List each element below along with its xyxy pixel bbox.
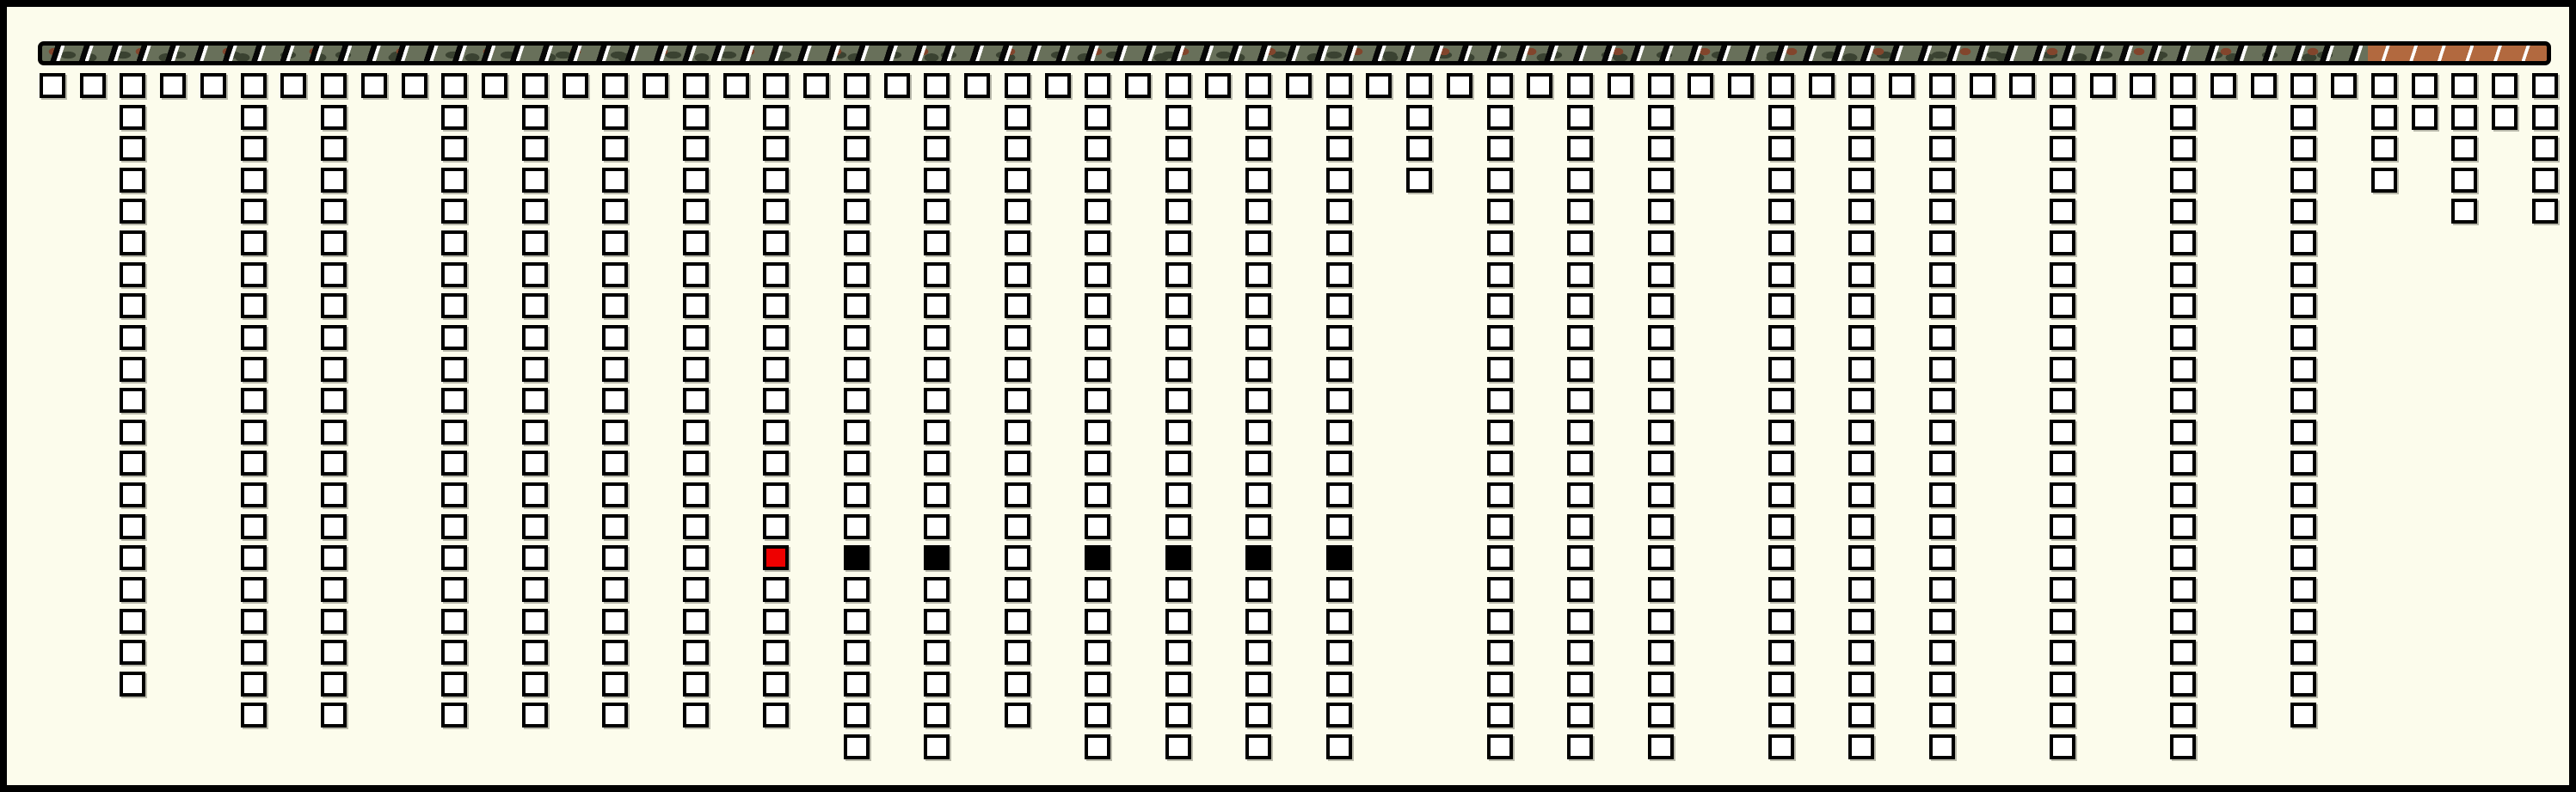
grid-cell[interactable] — [1567, 420, 1593, 445]
grid-cell[interactable] — [1005, 514, 1030, 539]
grid-cell[interactable] — [2050, 105, 2075, 130]
grid-cell[interactable] — [2170, 262, 2196, 287]
grid-cell[interactable] — [1165, 325, 1191, 350]
grid-cell[interactable] — [683, 105, 709, 130]
grid-cell[interactable] — [1768, 105, 1794, 130]
grid-cell[interactable] — [1487, 388, 1513, 413]
header-cell[interactable] — [2170, 73, 2196, 98]
grid-cell[interactable] — [2170, 199, 2196, 224]
grid-cell[interactable] — [241, 168, 267, 193]
grid-cell[interactable] — [763, 357, 789, 382]
grid-cell[interactable] — [1848, 703, 1874, 728]
grid-cell[interactable] — [441, 230, 467, 255]
grid-cell[interactable] — [1085, 609, 1110, 634]
grid-cell[interactable] — [522, 325, 548, 350]
grid-cell[interactable] — [1326, 420, 1352, 445]
grid-cell[interactable] — [241, 105, 267, 130]
grid-cell[interactable] — [1326, 451, 1352, 476]
grid-cell[interactable] — [241, 451, 267, 476]
grid-cell[interactable] — [1487, 545, 1513, 570]
grid-cell[interactable] — [683, 672, 709, 697]
grid-cell[interactable] — [1929, 325, 1955, 350]
grid-cell[interactable] — [763, 451, 789, 476]
grid-cell[interactable] — [1245, 293, 1271, 318]
grid-cell[interactable] — [241, 325, 267, 350]
grid-cell[interactable] — [1487, 230, 1513, 255]
grid-cell[interactable] — [321, 105, 347, 130]
grid-cell[interactable] — [1005, 451, 1030, 476]
header-cell[interactable] — [1608, 73, 1633, 98]
grid-cell[interactable] — [924, 230, 950, 255]
grid-cell[interactable] — [2290, 577, 2316, 602]
grid-cell[interactable] — [441, 136, 467, 161]
grid-cell[interactable] — [1567, 672, 1593, 697]
grid-cell[interactable] — [683, 420, 709, 445]
grid-cell[interactable] — [2290, 168, 2316, 193]
grid-cell[interactable] — [1929, 672, 1955, 697]
grid-cell[interactable] — [2170, 734, 2196, 759]
grid-cell[interactable] — [1245, 577, 1271, 602]
header-cell[interactable] — [2090, 73, 2116, 98]
grid-cell[interactable] — [2170, 703, 2196, 728]
grid-cell[interactable] — [763, 577, 789, 602]
grid-cell[interactable] — [1929, 199, 1955, 224]
grid-cell[interactable] — [522, 482, 548, 507]
grid-cell[interactable] — [2050, 482, 2075, 507]
grid-cell[interactable] — [763, 482, 789, 507]
grid-cell[interactable] — [2290, 262, 2316, 287]
grid-cell[interactable] — [924, 105, 950, 130]
grid-cell[interactable] — [1085, 672, 1110, 697]
grid-cell[interactable] — [1326, 262, 1352, 287]
header-cell[interactable] — [2050, 73, 2075, 98]
header-cell[interactable] — [1889, 73, 1915, 98]
grid-cell[interactable] — [2290, 545, 2316, 570]
grid-cell[interactable] — [120, 357, 145, 382]
grid-cell[interactable] — [844, 703, 870, 728]
grid-cell[interactable] — [1005, 357, 1030, 382]
grid-cell[interactable] — [2451, 105, 2477, 130]
grid-cell[interactable] — [1326, 230, 1352, 255]
grid-cell[interactable] — [2050, 451, 2075, 476]
grid-cell[interactable] — [1567, 388, 1593, 413]
grid-cell[interactable] — [844, 230, 870, 255]
grid-cell[interactable] — [844, 388, 870, 413]
grid-cell[interactable] — [120, 577, 145, 602]
grid-cell[interactable] — [1648, 420, 1674, 445]
grid-cell[interactable] — [1487, 640, 1513, 665]
header-cell[interactable] — [2412, 73, 2438, 98]
grid-cell[interactable] — [1005, 105, 1030, 130]
header-cell[interactable] — [1728, 73, 1754, 98]
grid-cell[interactable] — [1085, 199, 1110, 224]
grid-cell[interactable] — [120, 451, 145, 476]
grid-cell[interactable] — [2170, 293, 2196, 318]
grid-cell[interactable] — [1768, 325, 1794, 350]
grid-cell[interactable] — [763, 609, 789, 634]
grid-cell[interactable] — [1165, 168, 1191, 193]
header-cell[interactable] — [522, 73, 548, 98]
grid-cell[interactable] — [1768, 545, 1794, 570]
header-cell[interactable] — [1125, 73, 1151, 98]
grid-cell[interactable] — [522, 388, 548, 413]
grid-cell[interactable] — [1085, 640, 1110, 665]
grid-cell[interactable] — [522, 672, 548, 697]
grid-cell[interactable] — [1406, 168, 1432, 193]
grid-cell[interactable] — [2050, 357, 2075, 382]
grid-cell[interactable] — [1326, 357, 1352, 382]
grid-cell[interactable] — [1567, 514, 1593, 539]
header-cell[interactable] — [723, 73, 749, 98]
grid-cell[interactable] — [2371, 105, 2397, 130]
grid-cell[interactable] — [441, 703, 467, 728]
grid-cell[interactable] — [2290, 451, 2316, 476]
grid-cell[interactable] — [522, 136, 548, 161]
grid-cell[interactable] — [1487, 514, 1513, 539]
grid-cell[interactable] — [1648, 514, 1674, 539]
grid-cell[interactable] — [321, 703, 347, 728]
grid-cell[interactable] — [1165, 703, 1191, 728]
grid-cell[interactable] — [1326, 199, 1352, 224]
grid-cell[interactable] — [1326, 672, 1352, 697]
grid-cell[interactable] — [2170, 451, 2196, 476]
grid-cell[interactable] — [1326, 325, 1352, 350]
grid-cell[interactable] — [2050, 168, 2075, 193]
header-cell[interactable] — [2251, 73, 2277, 98]
grid-cell[interactable] — [1848, 168, 1874, 193]
grid-cell[interactable] — [1648, 136, 1674, 161]
grid-cell[interactable] — [1768, 136, 1794, 161]
grid-cell[interactable] — [1085, 703, 1110, 728]
grid-cell[interactable] — [1005, 703, 1030, 728]
grid-cell[interactable] — [1245, 672, 1271, 697]
grid-cell[interactable] — [1567, 199, 1593, 224]
grid-cell[interactable] — [1929, 420, 1955, 445]
grid-cell[interactable] — [2290, 105, 2316, 130]
header-cell[interactable] — [1567, 73, 1593, 98]
grid-cell[interactable] — [1768, 199, 1794, 224]
grid-cell[interactable] — [763, 293, 789, 318]
grid-cell[interactable] — [522, 609, 548, 634]
grid-cell[interactable] — [1326, 734, 1352, 759]
grid-cell[interactable] — [2290, 672, 2316, 697]
grid-cell[interactable] — [120, 262, 145, 287]
grid-cell[interactable] — [441, 672, 467, 697]
grid-cell[interactable] — [120, 420, 145, 445]
grid-cell[interactable] — [683, 199, 709, 224]
grid-cell[interactable] — [602, 357, 628, 382]
grid-cell[interactable] — [120, 514, 145, 539]
grid-cell[interactable] — [1085, 230, 1110, 255]
grid-cell[interactable] — [1648, 168, 1674, 193]
header-cell[interactable] — [1045, 73, 1071, 98]
grid-cell[interactable] — [1768, 451, 1794, 476]
grid-cell[interactable] — [321, 357, 347, 382]
grid-cell[interactable] — [763, 262, 789, 287]
grid-cell[interactable] — [1005, 325, 1030, 350]
header-cell[interactable] — [1406, 73, 1432, 98]
grid-cell[interactable] — [441, 640, 467, 665]
grid-cell[interactable] — [1648, 262, 1674, 287]
grid-cell[interactable] — [241, 703, 267, 728]
grid-cell[interactable] — [602, 262, 628, 287]
grid-cell[interactable] — [1567, 262, 1593, 287]
grid-cell[interactable] — [602, 514, 628, 539]
grid-cell[interactable] — [1648, 388, 1674, 413]
grid-cell[interactable] — [2451, 136, 2477, 161]
grid-cell[interactable] — [1245, 105, 1271, 130]
grid-cell[interactable] — [1648, 325, 1674, 350]
grid-cell[interactable] — [2050, 703, 2075, 728]
filled-cell-black[interactable] — [924, 545, 950, 570]
grid-cell[interactable] — [683, 230, 709, 255]
grid-cell[interactable] — [1648, 199, 1674, 224]
grid-cell[interactable] — [1768, 640, 1794, 665]
grid-cell[interactable] — [602, 577, 628, 602]
grid-cell[interactable] — [2050, 672, 2075, 697]
grid-cell[interactable] — [602, 545, 628, 570]
grid-cell[interactable] — [1567, 734, 1593, 759]
header-cell[interactable] — [2009, 73, 2035, 98]
header-cell[interactable] — [402, 73, 427, 98]
grid-cell[interactable] — [844, 262, 870, 287]
grid-cell[interactable] — [844, 105, 870, 130]
header-cell[interactable] — [321, 73, 347, 98]
grid-cell[interactable] — [2290, 199, 2316, 224]
grid-cell[interactable] — [522, 451, 548, 476]
grid-cell[interactable] — [1326, 514, 1352, 539]
grid-cell[interactable] — [1648, 640, 1674, 665]
grid-cell[interactable] — [1165, 420, 1191, 445]
grid-cell[interactable] — [321, 577, 347, 602]
grid-cell[interactable] — [441, 325, 467, 350]
grid-cell[interactable] — [683, 609, 709, 634]
grid-cell[interactable] — [441, 577, 467, 602]
grid-cell[interactable] — [1165, 357, 1191, 382]
grid-cell[interactable] — [1005, 640, 1030, 665]
grid-cell[interactable] — [924, 262, 950, 287]
grid-cell[interactable] — [683, 357, 709, 382]
grid-cell[interactable] — [602, 672, 628, 697]
grid-cell[interactable] — [1005, 388, 1030, 413]
grid-cell[interactable] — [1648, 451, 1674, 476]
grid-cell[interactable] — [1848, 230, 1874, 255]
grid-cell[interactable] — [441, 357, 467, 382]
grid-cell[interactable] — [924, 136, 950, 161]
grid-cell[interactable] — [1165, 514, 1191, 539]
grid-cell[interactable] — [1648, 577, 1674, 602]
grid-cell[interactable] — [924, 672, 950, 697]
header-cell[interactable] — [1768, 73, 1794, 98]
grid-cell[interactable] — [1848, 672, 1874, 697]
grid-cell[interactable] — [241, 199, 267, 224]
grid-cell[interactable] — [1487, 420, 1513, 445]
grid-cell[interactable] — [2290, 514, 2316, 539]
grid-cell[interactable] — [1567, 105, 1593, 130]
grid-cell[interactable] — [844, 357, 870, 382]
grid-cell[interactable] — [1245, 262, 1271, 287]
header-cell[interactable] — [1929, 73, 1955, 98]
grid-cell[interactable] — [1085, 168, 1110, 193]
grid-cell[interactable] — [1567, 703, 1593, 728]
grid-cell[interactable] — [2050, 734, 2075, 759]
grid-cell[interactable] — [522, 577, 548, 602]
grid-cell[interactable] — [2050, 262, 2075, 287]
grid-cell[interactable] — [1768, 672, 1794, 697]
header-cell[interactable] — [1447, 73, 1472, 98]
grid-cell[interactable] — [763, 703, 789, 728]
grid-cell[interactable] — [2050, 609, 2075, 634]
grid-cell[interactable] — [2170, 577, 2196, 602]
grid-cell[interactable] — [844, 672, 870, 697]
header-cell[interactable] — [1809, 73, 1835, 98]
header-cell[interactable] — [2130, 73, 2155, 98]
grid-cell[interactable] — [1848, 514, 1874, 539]
grid-cell[interactable] — [1929, 640, 1955, 665]
grid-cell[interactable] — [1005, 545, 1030, 570]
grid-cell[interactable] — [683, 545, 709, 570]
grid-cell[interactable] — [1487, 105, 1513, 130]
header-cell[interactable] — [120, 73, 145, 98]
grid-cell[interactable] — [2290, 230, 2316, 255]
grid-cell[interactable] — [2050, 388, 2075, 413]
grid-cell[interactable] — [1326, 136, 1352, 161]
grid-cell[interactable] — [683, 325, 709, 350]
grid-cell[interactable] — [1085, 734, 1110, 759]
grid-cell[interactable] — [1487, 293, 1513, 318]
grid-cell[interactable] — [924, 451, 950, 476]
grid-cell[interactable] — [1085, 293, 1110, 318]
header-cell[interactable] — [642, 73, 668, 98]
grid-cell[interactable] — [1085, 388, 1110, 413]
grid-cell[interactable] — [441, 545, 467, 570]
grid-cell[interactable] — [2290, 388, 2316, 413]
grid-cell[interactable] — [1085, 262, 1110, 287]
grid-cell[interactable] — [1005, 199, 1030, 224]
grid-cell[interactable] — [1848, 609, 1874, 634]
grid-cell[interactable] — [2170, 420, 2196, 445]
grid-cell[interactable] — [321, 451, 347, 476]
grid-cell[interactable] — [441, 514, 467, 539]
grid-cell[interactable] — [120, 136, 145, 161]
grid-cell[interactable] — [1567, 230, 1593, 255]
grid-cell[interactable] — [241, 640, 267, 665]
grid-cell[interactable] — [321, 672, 347, 697]
grid-cell[interactable] — [1648, 545, 1674, 570]
grid-cell[interactable] — [120, 199, 145, 224]
grid-cell[interactable] — [522, 262, 548, 287]
grid-cell[interactable] — [602, 168, 628, 193]
grid-cell[interactable] — [522, 640, 548, 665]
header-cell[interactable] — [1165, 73, 1191, 98]
grid-cell[interactable] — [1768, 168, 1794, 193]
grid-cell[interactable] — [1848, 357, 1874, 382]
grid-cell[interactable] — [1245, 640, 1271, 665]
grid-cell[interactable] — [602, 451, 628, 476]
grid-cell[interactable] — [321, 545, 347, 570]
grid-cell[interactable] — [602, 105, 628, 130]
grid-cell[interactable] — [602, 609, 628, 634]
grid-cell[interactable] — [1768, 357, 1794, 382]
grid-cell[interactable] — [321, 262, 347, 287]
grid-cell[interactable] — [1326, 640, 1352, 665]
grid-cell[interactable] — [924, 325, 950, 350]
grid-cell[interactable] — [2050, 577, 2075, 602]
grid-cell[interactable] — [1245, 136, 1271, 161]
grid-cell[interactable] — [2290, 609, 2316, 634]
grid-cell[interactable] — [2170, 230, 2196, 255]
grid-cell[interactable] — [602, 420, 628, 445]
grid-cell[interactable] — [1085, 451, 1110, 476]
grid-cell[interactable] — [241, 420, 267, 445]
grid-cell[interactable] — [683, 388, 709, 413]
grid-cell[interactable] — [2170, 545, 2196, 570]
grid-cell[interactable] — [1848, 482, 1874, 507]
grid-cell[interactable] — [241, 514, 267, 539]
grid-cell[interactable] — [602, 293, 628, 318]
grid-cell[interactable] — [1005, 577, 1030, 602]
grid-cell[interactable] — [1768, 514, 1794, 539]
header-cell[interactable] — [482, 73, 507, 98]
grid-cell[interactable] — [2170, 357, 2196, 382]
grid-cell[interactable] — [522, 293, 548, 318]
grid-cell[interactable] — [683, 514, 709, 539]
grid-cell[interactable] — [2050, 640, 2075, 665]
grid-cell[interactable] — [2492, 105, 2518, 130]
filled-cell-black[interactable] — [1245, 545, 1271, 570]
grid-cell[interactable] — [441, 482, 467, 507]
grid-cell[interactable] — [2290, 420, 2316, 445]
header-cell[interactable] — [844, 73, 870, 98]
grid-cell[interactable] — [1648, 357, 1674, 382]
grid-cell[interactable] — [683, 293, 709, 318]
grid-cell[interactable] — [1487, 136, 1513, 161]
grid-cell[interactable] — [2290, 482, 2316, 507]
grid-cell[interactable] — [1245, 609, 1271, 634]
grid-cell[interactable] — [1487, 451, 1513, 476]
grid-cell[interactable] — [844, 734, 870, 759]
grid-cell[interactable] — [1848, 734, 1874, 759]
grid-cell[interactable] — [1245, 420, 1271, 445]
grid-cell[interactable] — [763, 672, 789, 697]
grid-cell[interactable] — [441, 609, 467, 634]
grid-cell[interactable] — [1005, 609, 1030, 634]
grid-cell[interactable] — [924, 293, 950, 318]
grid-cell[interactable] — [1848, 545, 1874, 570]
grid-cell[interactable] — [441, 293, 467, 318]
grid-cell[interactable] — [683, 451, 709, 476]
grid-cell[interactable] — [1768, 293, 1794, 318]
header-cell[interactable] — [1527, 73, 1552, 98]
grid-cell[interactable] — [441, 262, 467, 287]
header-cell[interactable] — [563, 73, 588, 98]
grid-cell[interactable] — [241, 357, 267, 382]
filled-cell-black[interactable] — [1085, 545, 1110, 570]
grid-cell[interactable] — [2371, 168, 2397, 193]
grid-cell[interactable] — [1245, 482, 1271, 507]
grid-cell[interactable] — [120, 293, 145, 318]
grid-cell[interactable] — [1848, 293, 1874, 318]
filled-cell-black[interactable] — [1165, 545, 1191, 570]
grid-cell[interactable] — [1648, 672, 1674, 697]
grid-cell[interactable] — [683, 168, 709, 193]
grid-cell[interactable] — [1085, 105, 1110, 130]
grid-cell[interactable] — [602, 199, 628, 224]
header-cell[interactable] — [884, 73, 910, 98]
grid-cell[interactable] — [1245, 230, 1271, 255]
grid-cell[interactable] — [1326, 105, 1352, 130]
grid-cell[interactable] — [1245, 199, 1271, 224]
